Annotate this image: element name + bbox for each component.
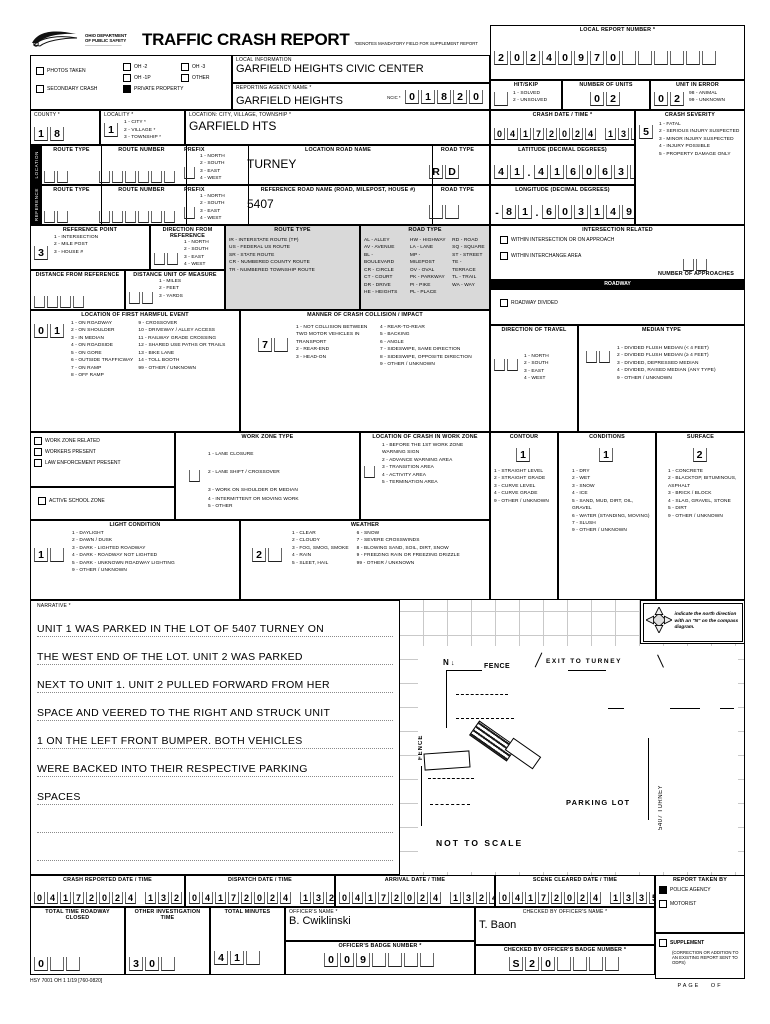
intersection-related-box: INTERSECTION RELATED WITHIN INTERSECTION… — [490, 225, 745, 280]
work-zone-type-options1: 1 - LANE CLOSURE 2 - LANE SHIFT / CROSSO… — [208, 452, 298, 493]
north-arrow-icon: ↓ — [451, 660, 455, 667]
local-information-value[interactable]: GARFIELD HEIGHTS CIVIC CENTER — [236, 63, 486, 75]
manner-of-crash-field[interactable]: 7 — [258, 334, 290, 369]
work-zone-flags-box: WORK ZONE RELATED WORKERS PRESENT LAW EN… — [30, 432, 175, 487]
hit-skip-box: HIT/SKIP 1 - SOLVED 2 - UNSOLVED — [490, 80, 562, 110]
crash-diagram-area: indicate the north direction with an "N"… — [400, 600, 745, 875]
route-type-legend-title: ROUTE TYPE — [229, 227, 356, 233]
number-of-units-field[interactable]: 02 — [590, 88, 622, 106]
compass-note-box: indicate the north direction with an "N"… — [640, 600, 745, 644]
location-cvt-box: LOCATION: CITY, VILLAGE, TOWNSHIP * GARF… — [185, 110, 490, 145]
police-agency-checkbox[interactable] — [659, 886, 667, 894]
oh1p-label: OH -1P — [134, 75, 151, 81]
location-route-number-field[interactable] — [99, 165, 177, 183]
lot-line-3 — [720, 708, 734, 709]
location-road-row: LOCATION ROUTE TYPE ROUTE NUMBER PREFIX … — [30, 145, 490, 185]
crash-severity-box: CRASH SEVERITY 5 1 - FATAL 2 - SERIOUS I… — [635, 110, 745, 225]
distance-unit-options: 1 - MILES 2 - FEET 3 - YARDS — [159, 278, 183, 304]
reference-point-field[interactable]: 3 — [34, 242, 50, 260]
arrival-label: ARRIVAL DATE / TIME — [339, 877, 491, 883]
police-agency-label: POLICE AGENCY — [670, 887, 711, 893]
secondary-crash-checkbox[interactable] — [36, 85, 44, 93]
road-type-legend-col1: AL - ALLEY AV - AVENUE BL - BOULEVARD CR… — [364, 237, 404, 296]
checked-by-name-value[interactable]: T. Baon — [479, 919, 651, 931]
location-route-type-label: ROUTE TYPE — [44, 147, 99, 153]
roadway-closed-box: TOTAL TIME ROADWAY CLOSED 0 — [30, 907, 125, 975]
county-field[interactable]: 18 — [34, 123, 66, 141]
work-zone-type-options2: 4 - INTERMITTENT OR MOVING WORK 5 - OTHE… — [208, 496, 299, 511]
location-cvt-label: LOCATION: CITY, VILLAGE, TOWNSHIP * — [189, 112, 486, 118]
roadway-bar: ROADWAY — [490, 280, 745, 289]
intersection-related-title: INTERSECTION RELATED — [494, 227, 741, 233]
manner-of-crash-col2: 4 - REAR-TO-REAR 5 - BACKING 6 - ANGLE 7… — [380, 324, 472, 369]
form-title: TRAFFIC CRASH REPORT — [142, 30, 349, 50]
photos-taken-checkbox[interactable] — [36, 67, 44, 75]
fence-line-h2 — [568, 670, 606, 671]
total-minutes-field[interactable]: 41 — [214, 947, 262, 965]
reference-point-label: REFERENCE POINT — [34, 227, 146, 233]
median-type-box: MEDIAN TYPE 1 - DIVIDED FLUSH MEDIAN (< … — [578, 325, 745, 432]
weather-options-col2: 6 - SNOW 7 - SEVERE CROSSWINDS 8 - BLOWI… — [357, 530, 460, 567]
median-type-options: 1 - DIVIDED FLUSH MEDIAN (< 4 FEET) 2 - … — [617, 345, 716, 382]
checked-by-badge-field[interactable]: S20 — [509, 953, 621, 971]
total-minutes-box: TOTAL MINUTES 41 — [210, 907, 285, 975]
conditions-box: CONDITIONS 1 1 - DRY 2 - WET 3 - SNOW 4 … — [558, 432, 656, 600]
location-road-type-field[interactable]: RD — [429, 161, 461, 179]
work-zone-related-label: WORK ZONE RELATED — [45, 438, 100, 444]
reference-point-options: 1 - INTERSECTION 2 - MILE POST 3 - HOUSE… — [54, 234, 98, 260]
direction-of-travel-options: 1 - NORTH 2 - SOUTH 3 - EAST 4 - WEST — [524, 353, 549, 383]
diagram-sketch-area[interactable]: N ↓ FENCE FENCE PARKING LOT 5407 TURNEY … — [418, 646, 738, 872]
reference-route-number-label: ROUTE NUMBER — [99, 187, 184, 193]
roadway-closed-label: TOTAL TIME ROADWAY CLOSED — [34, 909, 121, 921]
surface-title: SURFACE — [660, 434, 741, 440]
crash-severity-field[interactable]: 5 — [639, 121, 655, 158]
crash-severity-options: 1 - FATAL 2 - SERIOUS INJURY SUSPECTED 3… — [659, 121, 739, 158]
oh3-label: OH -3 — [192, 64, 205, 70]
unit-in-error-field[interactable]: 02 — [654, 88, 686, 106]
report-flags-box: PHOTOS TAKEN SECONDARY CRASH OH -2 OH -1… — [30, 55, 232, 110]
active-school-zone-checkbox[interactable] — [38, 497, 46, 505]
direction-from-reference-label: DIRECTION FROM REFERENCE — [154, 227, 221, 239]
location-route-type-field[interactable] — [44, 165, 70, 183]
scene-cleared-label: SCENE CLEARED DATE / TIME — [499, 877, 651, 883]
first-harmful-event-title: LOCATION OF FIRST HARMFUL EVENT — [34, 312, 236, 318]
local-report-number-field[interactable]: 20240970 — [494, 47, 718, 65]
reference-road-name-label: REFERENCE ROAD NAME (ROAD, MILEPOST, HOU… — [247, 187, 429, 193]
light-condition-title: LIGHT CONDITION — [34, 522, 236, 528]
road-type-legend-title: ROAD TYPE — [364, 227, 486, 233]
crash-reported-field[interactable]: 041720241320 — [34, 886, 185, 904]
locality-label: LOCALITY * — [104, 112, 181, 118]
location-road-type-label: ROAD TYPE — [429, 147, 486, 153]
median-type-field[interactable] — [586, 345, 612, 382]
oh3-checkbox[interactable] — [181, 63, 189, 71]
direction-from-reference-field[interactable] — [154, 247, 180, 269]
checked-by-badge-box: CHECKED BY OFFICER'S BADGE NUMBER * S20 — [475, 945, 655, 975]
latitude-box: LATITUDE (DECIMAL DEGREES) 41.416063 — [490, 145, 635, 185]
officer-badge-box: OFFICER'S BADGE NUMBER * 009 — [285, 941, 475, 975]
lot-line-2 — [670, 708, 700, 709]
distance-unit-field[interactable] — [129, 286, 155, 304]
reference-road-row: REFERENCE ROUTE TYPE ROUTE NUMBER PREFIX… — [30, 185, 490, 225]
scene-cleared-field[interactable]: 041720241335 — [499, 886, 655, 904]
other-report-label: OTHER — [192, 75, 210, 81]
contour-box: CONTOUR 1 1 - STRAIGHT LEVEL 2 - STRAIGH… — [490, 432, 558, 600]
weather-box: WEATHER 2 1 - CLEAR 2 - CLOUDY 3 - FOG, … — [240, 520, 490, 600]
roadway-divided-checkbox[interactable] — [500, 299, 508, 307]
first-harmful-event-col1: 1 - ON ROADWAY 2 - ON SHOULDER 3 - IN ME… — [71, 320, 133, 379]
narrative-box: NARRATIVE * UNIT 1 WAS PARKED IN THE LOT… — [30, 600, 400, 875]
checked-by-name-label: CHECKED BY OFFICER'S NAME * — [479, 909, 651, 915]
compass-icon — [646, 607, 672, 638]
arrival-field[interactable]: 041720241324 — [339, 886, 495, 904]
north-mark: N ↓ — [443, 658, 455, 667]
fence-line-v — [446, 670, 447, 728]
reference-prefix-field[interactable] — [184, 201, 197, 223]
location-row-tab: LOCATION — [31, 146, 42, 184]
contour-field[interactable]: 1 — [516, 444, 532, 462]
supplement-note: (CORRECTION OR ADDITION TO AN EXISTING R… — [672, 950, 741, 965]
contour-title: CONTOUR — [494, 434, 554, 440]
active-school-zone-label: ACTIVE SCHOOL ZONE — [49, 498, 105, 504]
light-condition-field[interactable]: 1 — [34, 544, 66, 575]
oh1p-checkbox[interactable] — [123, 74, 131, 82]
location-prefix-options: 1 - NORTH 2 - SOUTH 3 - EAST 4 - WEST — [200, 153, 225, 183]
not-to-scale-label: NOT TO SCALE — [436, 838, 523, 848]
local-report-number-box: LOCAL REPORT NUMBER * 20240970 — [490, 25, 745, 80]
first-harmful-event-col2: 9 - CROSSOVER 10 - DRIVEWAY / ALLEY ACCE… — [138, 320, 225, 379]
other-investigation-box: OTHER INVESTIGATION TIME 30 — [125, 907, 210, 975]
location-prefix-field[interactable] — [184, 161, 197, 183]
route-type-legend: ROUTE TYPE IR - INTERSTATE ROUTE (TP) US… — [225, 225, 360, 310]
distance-label: DISTANCE FROM REFERENCE — [34, 272, 121, 278]
latitude-field[interactable]: 41.416063 — [494, 161, 635, 179]
hit-skip-field[interactable] — [494, 88, 510, 106]
manner-of-crash-box: MANNER OF CRASH COLLISION / IMPACT 7 1 -… — [240, 310, 490, 432]
odps-logo-icon — [30, 27, 80, 54]
light-condition-options: 1 - DAYLIGHT 2 - DAWN / DUSK 3 - DARK - … — [72, 530, 175, 575]
direction-from-reference-options: 1 - NORTH 2 - SOUTH 3 - EAST 4 - WEST — [184, 239, 209, 269]
dispatch-label: DISPATCH DATE / TIME — [189, 877, 331, 883]
parking-stall-dash-3 — [428, 778, 474, 779]
crash-reported-label: CRASH REPORTED DATE / TIME — [34, 877, 181, 883]
crash-datetime-field[interactable]: 041720241320 — [494, 122, 635, 140]
locality-box: LOCALITY * 1 1 - CITY * 2 - VILLAGE * 3 … — [100, 110, 185, 145]
conditions-field[interactable]: 1 — [599, 444, 615, 462]
active-school-zone-box: ACTIVE SCHOOL ZONE — [30, 487, 175, 520]
work-zone-type-title: WORK ZONE TYPE — [179, 434, 356, 440]
other-report-checkbox[interactable] — [181, 74, 189, 82]
motorist-label: MOTORIST — [670, 901, 696, 907]
direction-from-reference-box: DIRECTION FROM REFERENCE 1 - NORTH 2 - S… — [150, 225, 225, 270]
checked-by-name-box: CHECKED BY OFFICER'S NAME * T. Baon — [475, 907, 655, 945]
parking-lot-label: PARKING LOT — [566, 798, 630, 807]
fence-line-h1 — [446, 670, 482, 671]
exit-tick-right — [657, 654, 664, 667]
reporting-agency-value[interactable]: GARFIELD HEIGHTS — [236, 95, 343, 107]
crash-datetime-box: CRASH DATE / TIME * 041720241320 — [490, 110, 635, 145]
total-minutes-label: TOTAL MINUTES — [214, 909, 281, 915]
workers-present-label: WORKERS PRESENT — [45, 449, 96, 455]
crash-datetime-label: CRASH DATE / TIME * — [494, 112, 631, 118]
supplement-label: SUPPLEMENT — [670, 940, 704, 946]
weather-title: WEATHER — [244, 522, 486, 528]
local-report-number-label: LOCAL REPORT NUMBER * — [494, 27, 741, 33]
conditions-title: CONDITIONS — [562, 434, 652, 440]
private-property-checkbox[interactable] — [123, 85, 131, 93]
road-type-legend-col2: HW - HIGHWAY LA - LANE MP - MILEPOST OV … — [410, 237, 446, 296]
supplement-box: SUPPLEMENT (CORRECTION OR ADDITION TO AN… — [655, 933, 745, 979]
scene-cleared-box: SCENE CLEARED DATE / TIME 041720241335 — [495, 875, 655, 907]
reference-route-type-label: ROUTE TYPE — [44, 187, 99, 193]
workers-present-checkbox[interactable] — [34, 448, 42, 456]
distance-unit-box: DISTANCE UNIT OF MEASURE 1 - MILES 2 - F… — [125, 270, 225, 310]
local-information-box: LOCAL INFORMATION GARFIELD HEIGHTS CIVIC… — [232, 55, 490, 83]
crash-reported-box: CRASH REPORTED DATE / TIME 041720241320 — [30, 875, 185, 907]
within-intersection-label: WITHIN INTERSECTION OR ON APPROACH — [511, 237, 614, 243]
road-type-legend-col3: RD - ROAD SQ - SQUARE ST - STREET TE - T… — [452, 237, 486, 296]
roadway-divided-label: ROADWAY DIVIDED — [511, 300, 558, 306]
first-harmful-event-field[interactable]: 01 — [34, 320, 66, 379]
longitude-box: LONGITUDE (DECIMAL DEGREES) -81.603149 — [490, 185, 635, 225]
surface-options: 1 - CONCRETE 2 - BLACKTOP, BITUMINOUS, A… — [668, 468, 741, 520]
crash-severity-label: CRASH SEVERITY — [639, 112, 741, 118]
locality-field[interactable]: 1 — [104, 119, 120, 137]
work-zone-type-box: WORK ZONE TYPE 1 - LANE CLOSURE 2 - LANE… — [175, 432, 360, 520]
distance-field[interactable] — [34, 290, 86, 308]
ncic-label: NCIC * — [387, 95, 400, 100]
parking-stall-dash-4 — [430, 804, 470, 805]
of-label: OF — [711, 983, 723, 989]
roadway-closed-field[interactable]: 0 — [34, 953, 82, 971]
weather-options-col1: 1 - CLEAR 2 - CLOUDY 3 - FOG, SMOG, SMOK… — [292, 530, 349, 567]
street-label: 5407 TURNEY — [658, 740, 664, 830]
arrival-box: ARRIVAL DATE / TIME 041720241324 — [335, 875, 495, 907]
direction-of-travel-field[interactable] — [494, 353, 520, 383]
supplement-checkbox[interactable] — [659, 939, 667, 947]
report-taken-by-box: REPORT TAKEN BY POLICE AGENCY MOTORIST — [655, 875, 745, 933]
location-road-name-value[interactable]: TURNEY — [247, 158, 429, 171]
form-subtitle: *DENOTES MANDATORY FIELD FOR SUPPLEMENT … — [354, 41, 477, 46]
fence-side-label: FENCE — [418, 716, 424, 760]
light-condition-box: LIGHT CONDITION 1 1 - DAYLIGHT 2 - DAWN … — [30, 520, 240, 600]
form-header: OHIO DEPARTMENT OF PUBLIC SAFETY ───────… — [30, 25, 490, 55]
crash-report-form: OHIO DEPARTMENT OF PUBLIC SAFETY ───────… — [30, 25, 745, 990]
locality-options: 1 - CITY * 2 - VILLAGE * 3 - TOWNSHIP * — [124, 119, 161, 141]
page-of: PAGE OF — [655, 983, 745, 989]
other-investigation-field[interactable]: 30 — [129, 953, 177, 971]
longitude-field[interactable]: -81.603149 — [494, 201, 635, 219]
direction-of-travel-title: DIRECTION OF TRAVEL — [494, 327, 574, 333]
dispatch-box: DISPATCH DATE / TIME 041720241320 — [185, 875, 335, 907]
reference-prefix-options: 1 - NORTH 2 - SOUTH 3 - EAST 4 - WEST — [200, 193, 225, 223]
median-type-title: MEDIAN TYPE — [582, 327, 741, 333]
county-box: COUNTY * 18 — [30, 110, 100, 145]
manner-of-crash-col1: 1 - NOT COLLISION BETWEEN TWO MOTOR VEHI… — [296, 324, 374, 369]
first-harmful-event-box: LOCATION OF FIRST HARMFUL EVENT 01 1 - O… — [30, 310, 240, 432]
within-interchange-checkbox[interactable] — [500, 252, 508, 260]
parking-stall-dash-2 — [456, 718, 514, 719]
direction-of-travel-box: DIRECTION OF TRAVEL 1 - NORTH 2 - SOUTH … — [490, 325, 578, 432]
other-investigation-label: OTHER INVESTIGATION TIME — [129, 909, 206, 921]
unit-in-error-box: UNIT IN ERROR 02 98 - ANIMAL 99 - UNKNOW… — [650, 80, 745, 110]
county-label: COUNTY * — [34, 112, 96, 118]
manner-of-crash-title: MANNER OF CRASH COLLISION / IMPACT — [244, 312, 486, 318]
law-enforcement-present-checkbox[interactable] — [34, 459, 42, 467]
roadway-divided-box: ROADWAY DIVIDED — [490, 289, 745, 325]
reference-point-box: REFERENCE POINT 3 1 - INTERSECTION 2 - M… — [30, 225, 150, 270]
reference-road-type-label: ROAD TYPE — [429, 187, 486, 193]
officer-name-value[interactable]: B. Cwiklinski — [289, 915, 471, 927]
work-zone-location-options: 1 - BEFORE THE 1ST WORK ZONE WARNING SIG… — [382, 442, 486, 487]
longitude-label: LONGITUDE (DECIMAL DEGREES) — [494, 187, 631, 193]
reference-road-type-field[interactable] — [429, 201, 461, 219]
vehicle-unit1-shape — [423, 750, 470, 770]
distance-box: DISTANCE FROM REFERENCE — [30, 270, 125, 310]
compass-note-text: indicate the north direction with an "N"… — [675, 612, 740, 632]
work-zone-location-field[interactable] — [364, 460, 377, 487]
work-zone-related-checkbox[interactable] — [34, 437, 42, 445]
surface-box: SURFACE 2 1 - CONCRETE 2 - BLACKTOP, BIT… — [656, 432, 745, 600]
work-zone-location-title: LOCATION OF CRASH IN WORK ZONE — [364, 434, 486, 440]
number-of-units-box: NUMBER OF UNITS 02 — [562, 80, 650, 110]
officer-name-box: OFFICER'S NAME * B. Cwiklinski — [285, 907, 475, 941]
law-enforcement-present-label: LAW ENFORCEMENT PRESENT — [45, 460, 121, 466]
lot-edge-line — [421, 766, 422, 826]
oh2-checkbox[interactable] — [123, 63, 131, 71]
lot-line-1 — [608, 708, 624, 709]
exit-tick-left — [535, 652, 543, 667]
motorist-checkbox[interactable] — [659, 900, 667, 908]
conditions-options: 1 - DRY 2 - WET 3 - SNOW 4 - ICE 5 - SAN… — [572, 468, 652, 535]
dept-name: OHIO DEPARTMENT OF PUBLIC SAFETY ───────… — [85, 33, 137, 48]
ncic-field[interactable]: 01820 — [405, 86, 485, 104]
secondary-crash-label: SECONDARY CRASH — [47, 86, 97, 92]
traffic-crash-report-page: OHIO DEPARTMENT OF PUBLIC SAFETY ───────… — [0, 0, 770, 1024]
unit-in-error-options: 98 - ANIMAL 99 - UNKNOWN — [689, 90, 725, 105]
dept-rule: ──────────── — [85, 43, 137, 48]
weather-field[interactable]: 2 — [252, 544, 284, 567]
vehicle-unit2-trailer-shape — [505, 738, 541, 770]
number-of-approaches-label: NUMBER OF APPROACHES — [658, 271, 734, 277]
officer-badge-field[interactable]: 009 — [324, 949, 436, 967]
within-interchange-label: WITHIN INTERCHANGE AREA — [511, 253, 581, 259]
within-intersection-checkbox[interactable] — [500, 236, 508, 244]
surface-field[interactable]: 2 — [693, 444, 709, 462]
driveway-line — [648, 738, 649, 820]
location-route-number-label: ROUTE NUMBER — [99, 147, 184, 153]
exit-label: EXIT TO TURNEY — [546, 658, 622, 665]
latitude-label: LATITUDE (DECIMAL DEGREES) — [494, 147, 631, 153]
narrative-text[interactable]: UNIT 1 WAS PARKED IN THE LOT OF 5407 TUR… — [37, 609, 393, 875]
work-zone-location-box: LOCATION OF CRASH IN WORK ZONE 1 - BEFOR… — [360, 432, 490, 520]
form-code: HSY 7001 OH 1 1/19 [760-0820] — [30, 978, 102, 984]
photos-taken-label: PHOTOS TAKEN — [47, 68, 86, 74]
contour-options: 1 - STRAIGHT LEVEL 2 - STRAIGHT GRADE 3 … — [494, 468, 554, 505]
parking-stall-dash-1 — [456, 694, 508, 695]
reference-row-tab: REFERENCE — [31, 186, 42, 224]
hit-skip-options: 1 - SOLVED 2 - UNSOLVED — [513, 90, 547, 105]
location-road-name-label: LOCATION ROAD NAME — [247, 147, 429, 153]
page-label: PAGE — [677, 983, 700, 989]
reporting-agency-box: REPORTING AGENCY NAME * GARFIELD HEIGHTS… — [232, 83, 490, 110]
reference-route-type-field[interactable] — [44, 205, 70, 223]
work-zone-type-field[interactable] — [189, 464, 202, 511]
dispatch-field[interactable]: 041720241320 — [189, 886, 335, 904]
report-taken-by-title: REPORT TAKEN BY — [659, 877, 741, 883]
reference-route-number-field[interactable] — [99, 205, 177, 223]
reference-road-name-value[interactable]: 5407 — [247, 198, 429, 211]
fence-label: FENCE — [484, 663, 510, 670]
number-of-approaches-field[interactable] — [683, 253, 709, 271]
oh2-label: OH -2 — [134, 64, 147, 70]
private-property-label: PRIVATE PROPERTY — [134, 86, 183, 92]
road-type-legend: ROAD TYPE AL - ALLEY AV - AVENUE BL - BO… — [360, 225, 490, 310]
route-type-legend-items: IR - INTERSTATE ROUTE (TP) US - FEDERAL … — [229, 237, 356, 274]
location-cvt-value[interactable]: GARFIELD HTS — [189, 120, 486, 133]
